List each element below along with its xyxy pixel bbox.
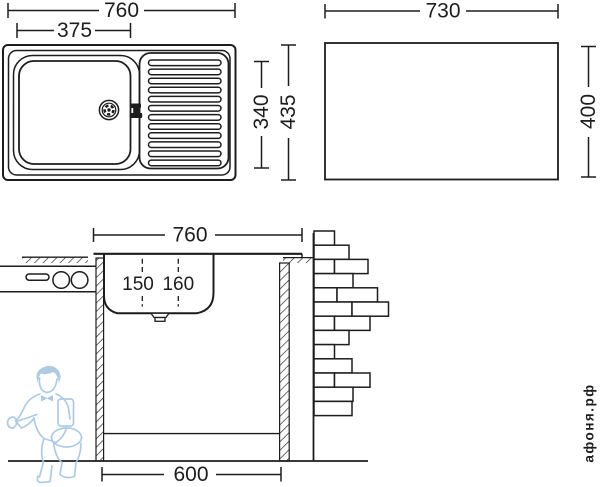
- brick: [314, 302, 352, 316]
- drainboard-rib: [149, 69, 222, 75]
- brick: [352, 302, 389, 316]
- brick: [335, 316, 371, 330]
- brick-wall: [314, 231, 389, 416]
- plumber-body: [34, 418, 67, 443]
- drainboard-rib: [149, 87, 222, 93]
- cabinet-side-right: [280, 263, 290, 461]
- bowl-depression-outline: [14, 56, 140, 170]
- plumber-jacket-left-arm: [16, 394, 41, 428]
- drainboard-rib: [149, 142, 222, 148]
- brick: [314, 316, 335, 330]
- brick: [314, 345, 335, 359]
- plumber-leg: [40, 439, 45, 478]
- brick: [314, 373, 335, 387]
- drainboard-rib: [149, 106, 222, 112]
- label-section-width: 760: [172, 224, 207, 247]
- bowl-section: [104, 254, 214, 313]
- label-top-bowl-depth: 340: [250, 94, 273, 129]
- watermark-text: афоня.рф: [582, 383, 597, 462]
- drawing-svg: 760 375 435 340 730 400 760 150 160 600 …: [0, 0, 600, 487]
- label-cutout-width: 730: [425, 0, 460, 23]
- drainboard-rib: [149, 96, 222, 102]
- knob-left: [53, 272, 70, 289]
- drainboard-rib: [149, 133, 222, 139]
- counter-right: [283, 258, 314, 263]
- drainboard-rib: [149, 124, 222, 130]
- cutout-view: [325, 2, 599, 180]
- label-depth-left: 150: [122, 274, 154, 295]
- toilet-seat: [52, 428, 82, 447]
- top-view-sink: [3, 1, 299, 180]
- label-depth-right: 160: [162, 274, 194, 295]
- brick: [335, 259, 369, 273]
- plumber-wrench-head: [8, 417, 17, 428]
- label-cutout-height: 400: [577, 94, 600, 129]
- brick: [314, 359, 352, 373]
- cabinet-side-left: [96, 258, 104, 461]
- drainboard-rib: [149, 60, 222, 66]
- label-top-bowl-width: 375: [57, 19, 92, 42]
- label-cabinet-width: 600: [173, 463, 208, 486]
- label-top-total-width: 760: [104, 0, 139, 22]
- brick: [314, 288, 337, 302]
- label-top-total-depth: 435: [277, 94, 300, 129]
- brick: [335, 373, 371, 387]
- plumber-face: [39, 378, 57, 393]
- drain-icon: [99, 100, 118, 119]
- brick: [314, 231, 335, 245]
- section-view: [0, 226, 368, 485]
- brick: [314, 387, 353, 401]
- sink-dimension-drawing: 760 375 435 340 730 400 760 150 160 600 …: [0, 0, 600, 487]
- plumber-bowtie: [41, 395, 53, 402]
- counter-front-left: [0, 257, 96, 292]
- brick: [314, 401, 352, 415]
- cutout-rectangle: [325, 43, 558, 180]
- drain-fitting: [151, 313, 169, 321]
- brick: [314, 245, 349, 259]
- brick: [314, 274, 353, 288]
- drainboard-rib: [149, 78, 222, 84]
- brick: [337, 288, 378, 302]
- drainboard-rib: [149, 160, 222, 166]
- knob-right: [71, 272, 88, 289]
- drainboard-rib: [149, 151, 222, 157]
- drainboard-ribs: [149, 60, 222, 166]
- drainboard-rib: [149, 115, 222, 121]
- brick: [314, 259, 335, 273]
- drawer-handle: [26, 274, 49, 280]
- plumber-logo: [8, 366, 82, 483]
- brick: [314, 330, 349, 344]
